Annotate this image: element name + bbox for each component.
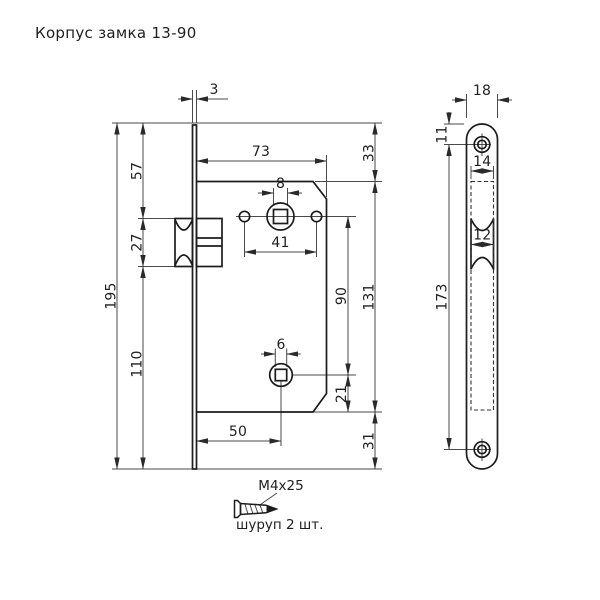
faceplate-side bbox=[193, 125, 197, 469]
main-view bbox=[175, 125, 327, 469]
dim-screw-holes-spacing: 173 bbox=[435, 283, 451, 310]
dim-plate-width: 18 bbox=[473, 83, 491, 99]
dim-latch-width: 12 bbox=[473, 228, 491, 244]
screw-head bbox=[235, 501, 241, 518]
dim-body-depth: 73 bbox=[252, 144, 270, 160]
dim-faceplate-thickness: 3 bbox=[209, 82, 218, 98]
key-square-hole bbox=[275, 369, 286, 380]
dim-top-to-latch: 57 bbox=[130, 162, 146, 180]
dim-top-to-screw-hole: 11 bbox=[435, 125, 451, 143]
dim-spindle-to-key: 90 bbox=[334, 287, 350, 305]
drawing-title: Корпус замка 13-90 bbox=[35, 24, 197, 42]
screw-detail bbox=[235, 501, 277, 518]
dim-top-to-body: 33 bbox=[362, 144, 378, 162]
drawing-sheet: Корпус замка 13-90 3 73 8 41 6 50 195 57… bbox=[0, 0, 600, 600]
dim-latch-height: 27 bbox=[130, 233, 146, 251]
screw-quantity-note: шуруп 2 шт. bbox=[236, 517, 323, 533]
dim-plate-height: 195 bbox=[104, 282, 120, 309]
dim-backset: 50 bbox=[229, 424, 247, 440]
dim-body-bottom-to-plate: 31 bbox=[362, 432, 378, 450]
hidden-body-outline bbox=[471, 182, 494, 411]
lock-drawing-svg: Корпус замка 13-90 3 73 8 41 6 50 195 57… bbox=[0, 0, 600, 600]
dim-handle-holes-spacing: 41 bbox=[271, 235, 289, 251]
dim-spindle-square: 8 bbox=[276, 176, 285, 192]
latch-bolt-side bbox=[175, 219, 222, 267]
dim-body-height: 131 bbox=[362, 283, 378, 310]
dimension-lines bbox=[117, 99, 512, 469]
dim-key-square: 6 bbox=[276, 337, 285, 353]
dim-latch-to-bottom: 110 bbox=[130, 350, 146, 377]
screw-size-label: M4x25 bbox=[258, 478, 303, 494]
dim-body-slot-width: 14 bbox=[473, 154, 491, 170]
dim-key-to-body-bottom: 21 bbox=[334, 385, 350, 403]
